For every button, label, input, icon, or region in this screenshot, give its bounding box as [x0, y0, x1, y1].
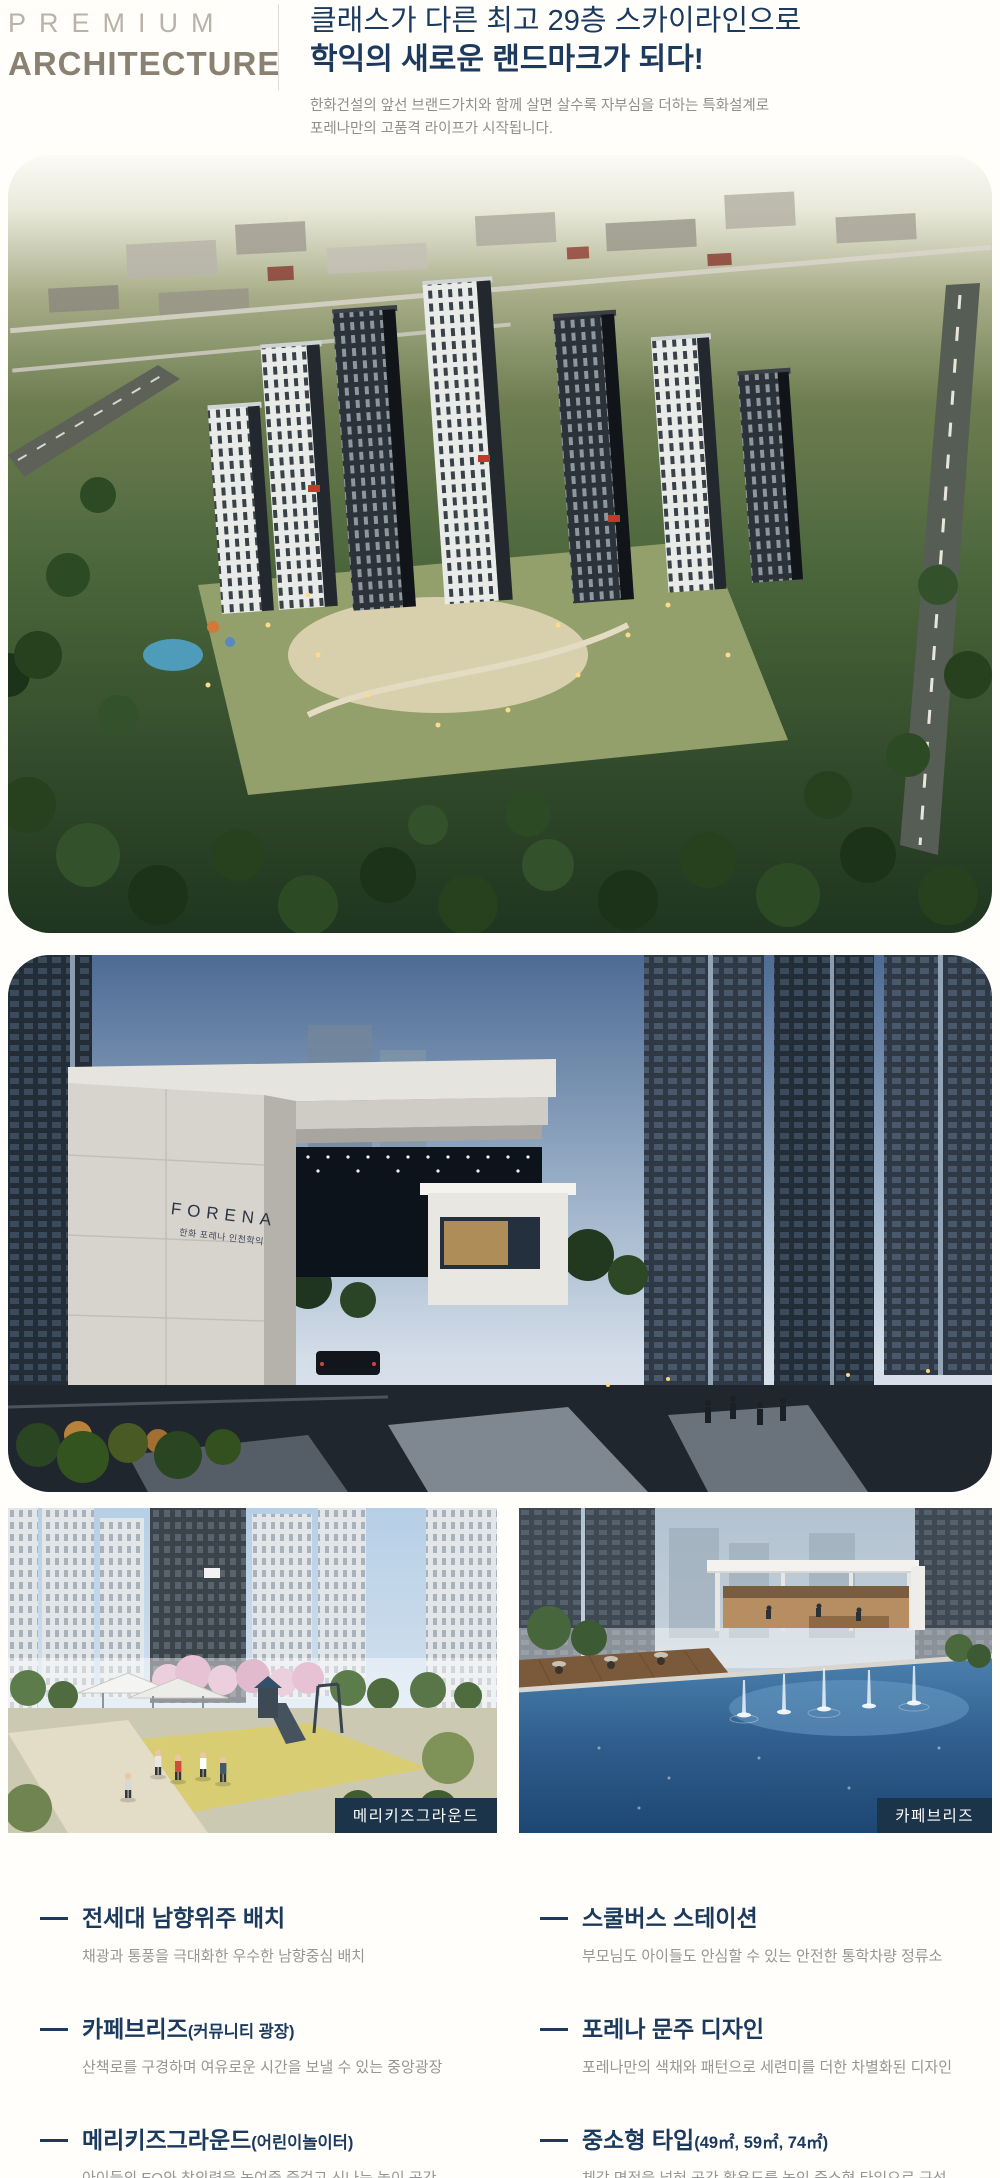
- feature-item-merry-kids-ground: 메리키즈그라운드(어린이놀이터) 아이들의 EQ와 창의력을 높여줄 즐겁고 신…: [0, 2127, 500, 2178]
- feature-title-text: 전세대 남향위주 배치: [82, 1905, 285, 1931]
- header-description: 한화건설의 앞선 브랜드가치와 함께 살면 살수록 자부심을 더하는 특화설계로…: [310, 95, 801, 141]
- feature-title-suffix: (49㎡, 59㎡, 74㎡): [694, 2134, 828, 2152]
- feature-title-suffix: (커뮤니티 광장): [188, 2023, 295, 2041]
- dash-icon: [40, 2139, 68, 2142]
- feature-title: 메리키즈그라운드(어린이놀이터): [82, 2127, 436, 2156]
- dash-icon: [540, 2028, 568, 2031]
- page: PREMIUM ARCHITECTURE 클래스가 다른 최고 29층 스카이라…: [0, 0, 1000, 2178]
- gate-rendering-photo: FORENA 한화 포레나 인천학익: [8, 955, 992, 1492]
- dash-icon: [540, 2139, 568, 2142]
- feature-description: 아이들의 EQ와 창의력을 높여줄 즐겁고 신나는 놀이 공간: [82, 2168, 436, 2178]
- dash-icon: [40, 2028, 68, 2031]
- feature-description: 체감 면적을 넓혀 공간 활용도를 높인 중소형 타입으로 구성: [582, 2168, 947, 2178]
- eyebrow-premium: PREMIUM: [8, 8, 280, 39]
- feature-description: 채광과 통풍을 극대화한 우수한 남향중심 배치: [82, 1946, 365, 1967]
- header-description-line1: 한화건설의 앞선 브랜드가치와 함께 살면 살수록 자부심을 더하는 특화설계로: [310, 95, 801, 118]
- cafe-scene-illustration: [519, 1508, 992, 1833]
- section-title: ARCHITECTURE: [8, 45, 280, 83]
- feature-description: 산책로를 구경하며 여유로운 시간을 보낼 수 있는 중앙광장: [82, 2057, 442, 2078]
- feature-title-text: 카페브리즈: [82, 2016, 188, 2042]
- feature-title-text: 중소형 타입: [582, 2127, 694, 2153]
- feature-list: 전세대 남향위주 배치 채광과 통풍을 극대화한 우수한 남향중심 배치 스쿨버…: [0, 1905, 1000, 2178]
- aerial-rendering-photo: [8, 155, 992, 933]
- section-header-left: PREMIUM ARCHITECTURE: [8, 8, 280, 83]
- feature-item-school-bus-station: 스쿨버스 스테이션 부모님도 아이들도 안심할 수 있는 안전한 통학차량 정류…: [500, 1905, 1000, 1967]
- cafe-breeze-photo: 카페브리즈: [519, 1508, 992, 1833]
- header-divider: [278, 4, 279, 90]
- feature-item-gate-design: 포레나 문주 디자인 포레나만의 색채와 패턴으로 세련미를 더한 차별화된 디…: [500, 2016, 1000, 2078]
- headline-line1: 클래스가 다른 최고 29층 스카이라인으로: [310, 2, 801, 40]
- feature-description: 포레나만의 색채와 패턴으로 세련미를 더한 차별화된 디자인: [582, 2057, 952, 2078]
- feature-title: 포레나 문주 디자인: [582, 2016, 952, 2045]
- feature-title: 카페브리즈(커뮤니티 광장): [82, 2016, 442, 2045]
- feature-title-text: 포레나 문주 디자인: [582, 2016, 764, 2042]
- aerial-scene-illustration: [8, 155, 992, 933]
- playground-photo-label: 메리키즈그라운드: [335, 1798, 497, 1833]
- feature-title-text: 스쿨버스 스테이션: [582, 1905, 758, 1931]
- headline-line2: 학익의 새로운 랜드마크가 되다!: [310, 40, 801, 80]
- cafe-photo-label: 카페브리즈: [877, 1798, 992, 1833]
- dash-icon: [540, 1917, 568, 1920]
- feature-title: 중소형 타입(49㎡, 59㎡, 74㎡): [582, 2127, 947, 2156]
- feature-item-cafe-breeze: 카페브리즈(커뮤니티 광장) 산책로를 구경하며 여유로운 시간을 보낼 수 있…: [0, 2016, 500, 2078]
- feature-item-south-facing: 전세대 남향위주 배치 채광과 통풍을 극대화한 우수한 남향중심 배치: [0, 1905, 500, 1967]
- feature-title-suffix: (어린이놀이터): [251, 2134, 353, 2152]
- playground-photo: 메리키즈그라운드: [8, 1508, 497, 1833]
- dash-icon: [40, 1917, 68, 1920]
- feature-item-small-medium-types: 중소형 타입(49㎡, 59㎡, 74㎡) 체감 면적을 넓혀 공간 활용도를 …: [500, 2127, 1000, 2178]
- feature-title-text: 메리키즈그라운드: [82, 2127, 251, 2153]
- feature-description: 부모님도 아이들도 안심할 수 있는 안전한 통학차량 정류소: [582, 1946, 942, 1967]
- header-description-line2: 포레나만의 고품격 라이프가 시작됩니다.: [310, 118, 801, 141]
- playground-scene-illustration: [8, 1508, 497, 1833]
- section-header-right: 클래스가 다른 최고 29층 스카이라인으로 학익의 새로운 랜드마크가 되다!…: [310, 2, 801, 141]
- feature-title: 스쿨버스 스테이션: [582, 1905, 942, 1934]
- gate-scene-illustration: [8, 955, 992, 1492]
- feature-title: 전세대 남향위주 배치: [82, 1905, 365, 1934]
